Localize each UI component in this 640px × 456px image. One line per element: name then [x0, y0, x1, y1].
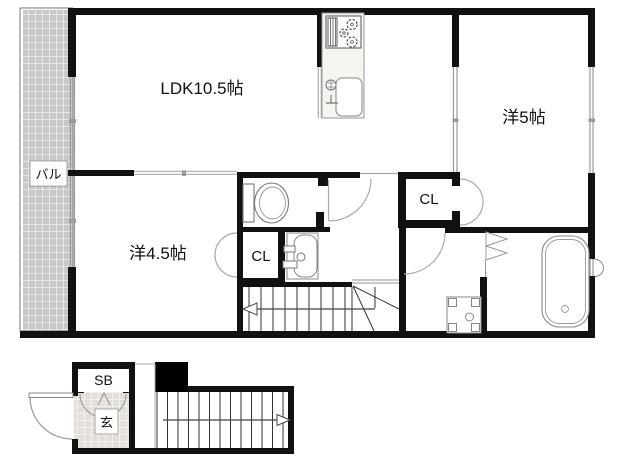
washing-machine-pan-icon	[447, 297, 481, 333]
closet1-label: CL	[251, 248, 270, 265]
closet2-door-arc-top	[460, 179, 483, 202]
shoe-box-label: SB	[94, 372, 113, 388]
balcony-label-text: バル	[35, 167, 61, 182]
room-label-western45: 洋4.5帖	[129, 244, 187, 263]
room-label-western5: 洋5帖	[502, 108, 545, 127]
stairs-lower	[157, 392, 290, 448]
entrance-door-panel	[29, 393, 73, 398]
stair-arrow-icon	[243, 303, 257, 315]
entrance-label: 玄	[95, 409, 118, 434]
closet1-door-arc-top	[215, 233, 237, 255]
kitchen-unit	[322, 13, 364, 118]
closet2-label: CL	[419, 191, 438, 208]
upper-floor: LDK10.5帖 洋5帖 洋4.5帖 CL CL バル	[20, 8, 604, 338]
entrance-door	[29, 393, 73, 439]
closet1-door-arc-bottom	[215, 255, 237, 277]
toilet-door-arc	[329, 179, 371, 221]
washbasin-icon	[283, 233, 318, 279]
room-label-ldk: LDK10.5帖	[160, 79, 243, 98]
washroom-door-arc	[404, 233, 445, 274]
entrance-label-text: 玄	[100, 415, 113, 430]
solid-block	[155, 362, 188, 392]
bath-folding-door-icon	[486, 232, 508, 277]
stove-icon	[326, 16, 361, 48]
closet2-door-arc-bottom	[460, 202, 483, 225]
toilet-icon	[243, 183, 289, 223]
bath-window-icon	[595, 260, 604, 277]
stair-void-strip	[135, 364, 155, 448]
floor-plan: LDK10.5帖 洋5帖 洋4.5帖 CL CL バル	[0, 0, 640, 456]
floor-plan-drawing: LDK10.5帖 洋5帖 洋4.5帖 CL CL バル	[0, 0, 640, 456]
opening-tick	[182, 171, 186, 177]
lower-floor: SB 玄	[29, 362, 294, 454]
balcony-label: バル	[30, 161, 67, 186]
entrance-door-arc	[30, 397, 72, 439]
bathtub-icon	[542, 236, 589, 327]
stairs-upper	[243, 286, 399, 331]
